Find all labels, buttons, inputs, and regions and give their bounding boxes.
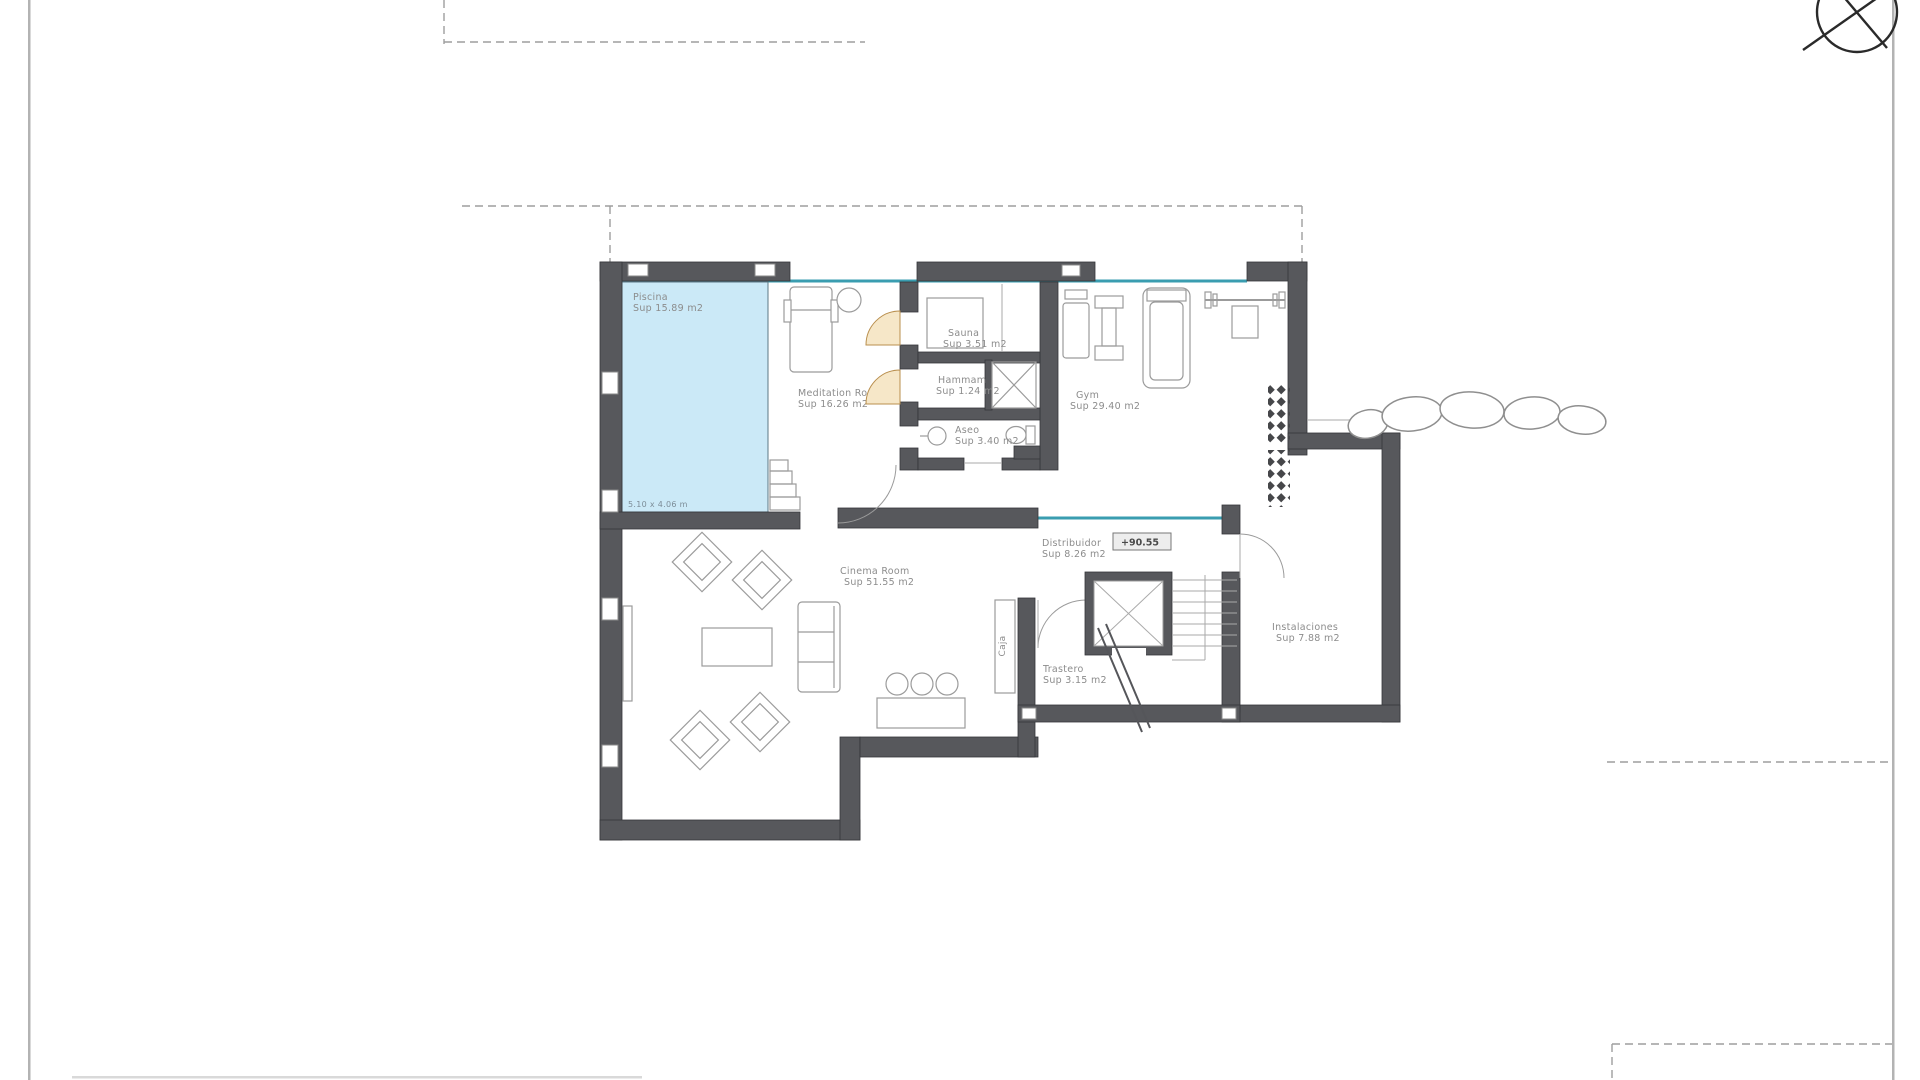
- sauna-room: Sauna Sup 3.51 m2: [927, 284, 1007, 352]
- caja-label: Caja: [998, 635, 1008, 656]
- stepping-stones: [1307, 390, 1608, 442]
- sofa: [798, 602, 840, 692]
- room-area: Sup 29.40 m2: [1070, 401, 1140, 412]
- side-table: [837, 288, 861, 312]
- level-marker: +90.55: [1121, 538, 1159, 549]
- instalaciones-door: [1240, 534, 1284, 578]
- cutoff-text-strip: [72, 1076, 642, 1079]
- bar-counter: [877, 673, 965, 728]
- floor-plan-page: Piscina Sup 15.89 m2 5.10 x 4.06 m: [0, 0, 1920, 1080]
- room-area: Sup 8.26 m2: [1042, 549, 1106, 560]
- room-label: Instalaciones: [1272, 622, 1338, 633]
- room-area: Sup 3.40 m2: [955, 436, 1019, 447]
- room-label: Cinema Room: [840, 566, 910, 577]
- sauna-door: [866, 311, 900, 345]
- dumbbell-rack: [1268, 385, 1290, 443]
- hammam-door: [866, 370, 900, 404]
- cinema-room: Caja Cinema Room Sup 51.55 m2: [623, 532, 1015, 769]
- armchair: [670, 710, 729, 769]
- pool-room: Piscina Sup 15.89 m2 5.10 x 4.06 m: [622, 282, 800, 512]
- armchair: [730, 692, 789, 751]
- page-border-right: [1892, 0, 1895, 1080]
- distribuidor: Distribuidor Sup 8.26 m2 +90.55: [1042, 533, 1171, 560]
- room-area: Sup 3.51 m2: [943, 339, 1007, 350]
- room-label: Aseo: [955, 425, 979, 436]
- room-label: Gym: [1076, 390, 1099, 401]
- room-label: Piscina: [633, 292, 668, 303]
- room-area: Sup 51.55 m2: [844, 577, 914, 588]
- dumbbell-rack: [1268, 450, 1290, 507]
- floor-plan-drawing: Piscina Sup 15.89 m2 5.10 x 4.06 m: [0, 0, 1920, 1080]
- room-area: Sup 3.15 m2: [1043, 675, 1107, 686]
- trastero-door: [1038, 600, 1086, 648]
- page-border-left: [28, 0, 31, 1080]
- pool-water: [622, 282, 768, 512]
- elevator: [1085, 572, 1172, 656]
- instalaciones-room: Instalaciones Sup 7.88 m2: [1272, 622, 1340, 644]
- armchair: [732, 550, 791, 609]
- coffee-table: [702, 628, 772, 666]
- projection-screen: [623, 606, 632, 701]
- shower: [992, 362, 1036, 408]
- room-label: Trastero: [1042, 664, 1084, 675]
- gym-room: Gym Sup 29.40 m2: [1063, 288, 1290, 507]
- workout-bench: [1063, 290, 1089, 358]
- room-area: Sup 7.88 m2: [1276, 633, 1340, 644]
- barbell-station: [1205, 292, 1285, 338]
- lounge-chair: [790, 287, 832, 372]
- room-area: Sup 1.24 m2: [936, 386, 1000, 397]
- trastero-room: Trastero Sup 3.15 m2: [1042, 664, 1107, 686]
- washbasin: [928, 427, 946, 445]
- multi-gym-machine: [1095, 296, 1123, 360]
- room-label: Distribuidor: [1042, 538, 1101, 549]
- room-area: Sup 16.26 m2: [798, 399, 868, 410]
- room-area: Sup 15.89 m2: [633, 303, 703, 314]
- room-label: Hammam: [938, 375, 986, 386]
- pool-steps: [770, 460, 800, 510]
- pool-dimension-label: 5.10 x 4.06 m: [628, 500, 688, 509]
- armchair: [672, 532, 731, 591]
- compass-icon: [1803, 0, 1897, 52]
- treadmill: [1143, 288, 1190, 388]
- room-label: Sauna: [948, 328, 979, 339]
